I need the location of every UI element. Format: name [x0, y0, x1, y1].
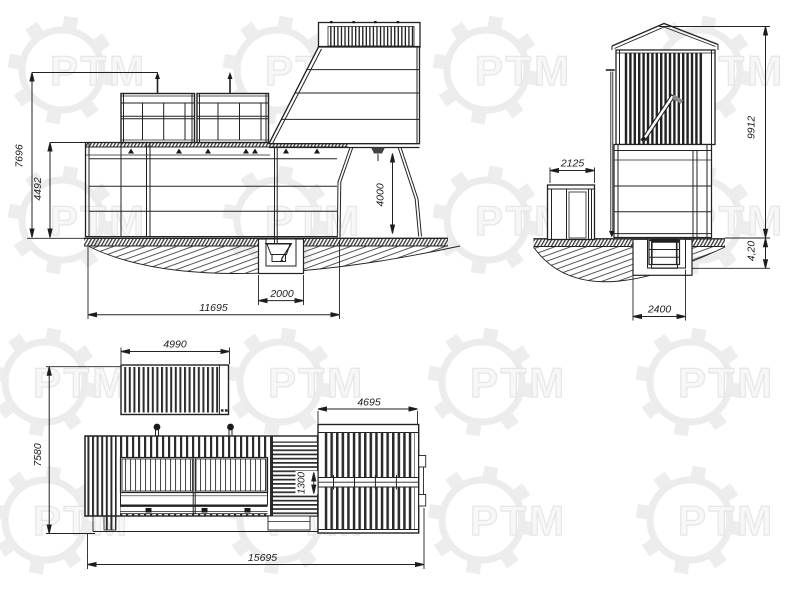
- svg-text:4,20: 4,20: [746, 241, 758, 262]
- svg-text:11695: 11695: [199, 302, 228, 314]
- svg-text:2000: 2000: [269, 288, 294, 300]
- svg-text:4990: 4990: [163, 339, 187, 351]
- svg-text:4492: 4492: [32, 177, 44, 201]
- svg-text:7696: 7696: [14, 144, 26, 168]
- svg-text:2400: 2400: [647, 304, 672, 316]
- svg-text:9912: 9912: [746, 116, 758, 140]
- svg-text:4695: 4695: [357, 397, 381, 409]
- svg-text:1300: 1300: [297, 471, 308, 494]
- svg-text:15695: 15695: [248, 552, 277, 564]
- svg-text:4000: 4000: [375, 183, 387, 207]
- svg-text:7580: 7580: [32, 443, 44, 467]
- svg-text:2125: 2125: [560, 158, 585, 170]
